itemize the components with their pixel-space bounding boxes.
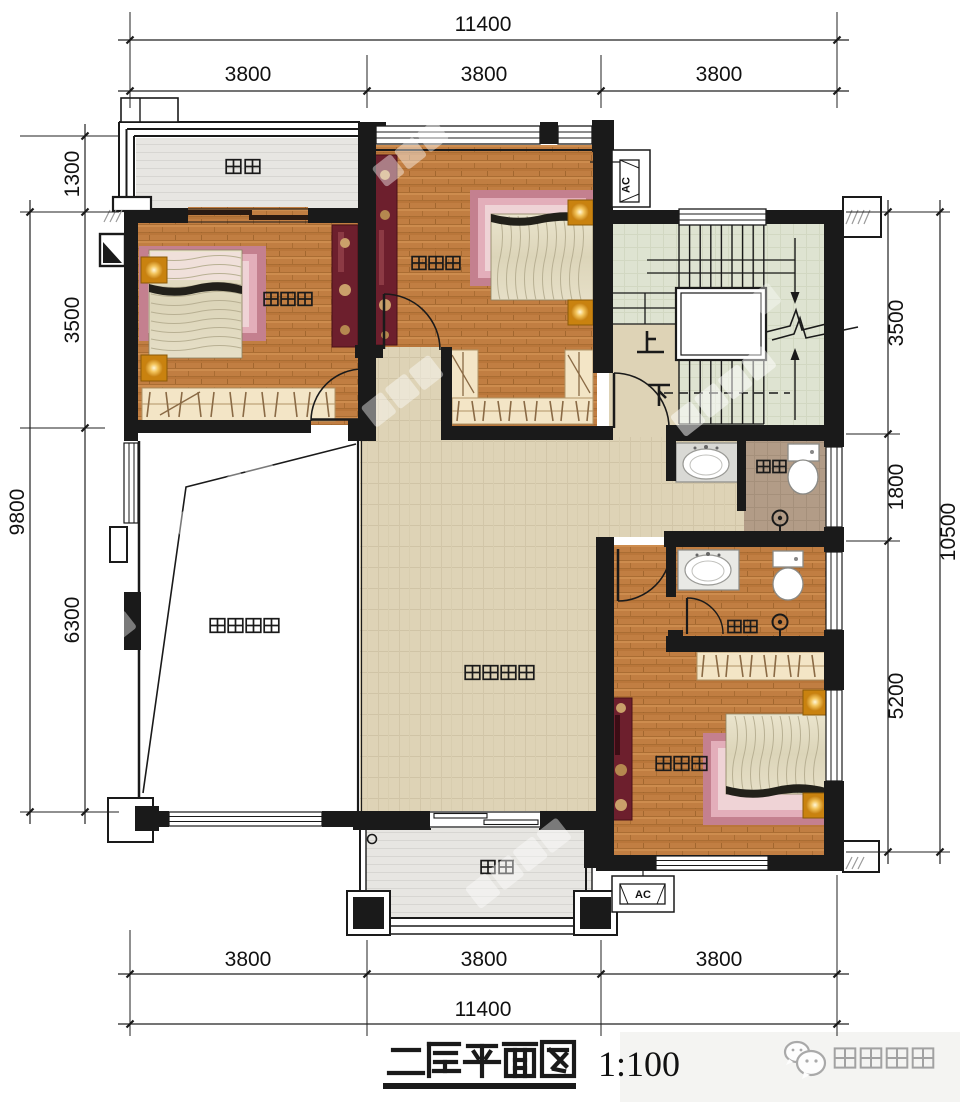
svg-text:1800: 1800 xyxy=(885,464,908,511)
svg-text:3800: 3800 xyxy=(461,948,508,971)
svg-text:3800: 3800 xyxy=(696,63,743,86)
svg-text:3500: 3500 xyxy=(61,297,84,344)
svg-text:11400: 11400 xyxy=(455,998,512,1021)
svg-text:3500: 3500 xyxy=(885,300,908,347)
svg-text:3800: 3800 xyxy=(461,63,508,86)
svg-text:11400: 11400 xyxy=(455,13,512,36)
svg-text:3800: 3800 xyxy=(696,948,743,971)
svg-text:9800: 9800 xyxy=(6,489,29,536)
svg-text:5200: 5200 xyxy=(885,673,908,720)
svg-text:1:100: 1:100 xyxy=(598,1044,680,1084)
svg-text:6300: 6300 xyxy=(61,597,84,644)
svg-text:3800: 3800 xyxy=(225,948,272,971)
svg-text:1300: 1300 xyxy=(61,151,84,198)
svg-text:AC: AC xyxy=(621,177,633,193)
svg-text:AC: AC xyxy=(635,889,651,901)
svg-text:3800: 3800 xyxy=(225,63,272,86)
svg-text:10500: 10500 xyxy=(937,503,960,561)
